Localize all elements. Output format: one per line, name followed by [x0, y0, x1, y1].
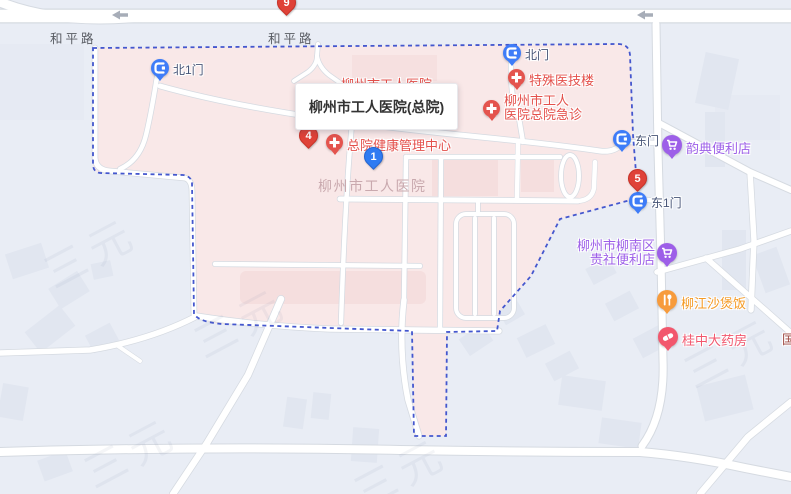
partial-edge-label: 国	[782, 329, 791, 348]
hospital-cross-icon	[508, 69, 525, 86]
poi-label-line2: 医院总院急诊	[504, 107, 582, 122]
gate-label: 东1门	[651, 194, 682, 211]
poi-yundian-store[interactable]: 韵典便利店	[662, 135, 682, 155]
poi-hospital-emergency[interactable]: 柳州市工人医院总院急诊	[483, 100, 500, 117]
poi-liujiang-restaurant[interactable]: 柳江沙煲饭	[657, 290, 677, 310]
poi-label: 特殊医技楼	[529, 70, 594, 89]
poi-label: 总院健康管理中心	[347, 135, 451, 154]
poi-label: 柳江沙煲饭	[681, 293, 746, 312]
gate-icon	[613, 130, 631, 148]
road-label-hepinglu-left: 和平路	[50, 28, 97, 47]
gate-marker-north1[interactable]: 北1门	[151, 59, 169, 77]
hospital-info-title: 柳州市工人医院(总院)	[309, 97, 444, 117]
gate-label: 北门	[525, 46, 549, 63]
poi-label: 桂中大药房	[682, 330, 747, 349]
gate-icon	[629, 192, 647, 210]
pill-icon	[658, 327, 678, 347]
poi-special-medical-building[interactable]: 特殊医技楼	[508, 69, 525, 86]
poi-guizhong-pharmacy[interactable]: 桂中大药房	[658, 327, 678, 347]
gate-label: 东门	[635, 132, 659, 149]
shopping-cart-icon	[657, 243, 677, 263]
gate-marker-east1[interactable]: 东1门	[629, 192, 647, 210]
poi-label-line2: 贵社便利店	[590, 252, 655, 267]
pin-number: 9	[278, 0, 295, 11]
gate-marker-north[interactable]: 北门	[503, 44, 521, 62]
poi-health-management-center[interactable]: 总院健康管理中心	[326, 134, 343, 151]
hospital-cross-icon	[326, 134, 343, 151]
gate-icon	[503, 44, 521, 62]
hospital-cross-icon	[483, 100, 500, 117]
poi-label: 柳州市柳南区贵社便利店	[577, 239, 655, 266]
gate-label: 北1门	[173, 61, 204, 78]
road-label-hepinglu-center: 和平路	[268, 28, 315, 47]
poi-guishe-store[interactable]: 柳州市柳南区贵社便利店	[657, 243, 677, 263]
gate-icon	[151, 59, 169, 77]
campus-area-label: 柳州市工人医院	[318, 176, 427, 196]
poi-label: 柳州市工人医院总院急诊	[504, 94, 582, 121]
poi-label: 韵典便利店	[686, 138, 751, 157]
map-viewport[interactable]: 三元 三元 三元 三元 三元 和平路 和平路 柳州市工人医院 柳州市工人医院 北…	[0, 0, 791, 494]
food-icon	[657, 290, 677, 310]
shopping-cart-icon	[662, 135, 682, 155]
hospital-info-box[interactable]: 柳州市工人医院(总院)	[295, 83, 458, 130]
gate-marker-east[interactable]: 东门	[613, 130, 631, 148]
pin-number: 1	[365, 148, 382, 165]
pin-number: 5	[629, 170, 646, 187]
